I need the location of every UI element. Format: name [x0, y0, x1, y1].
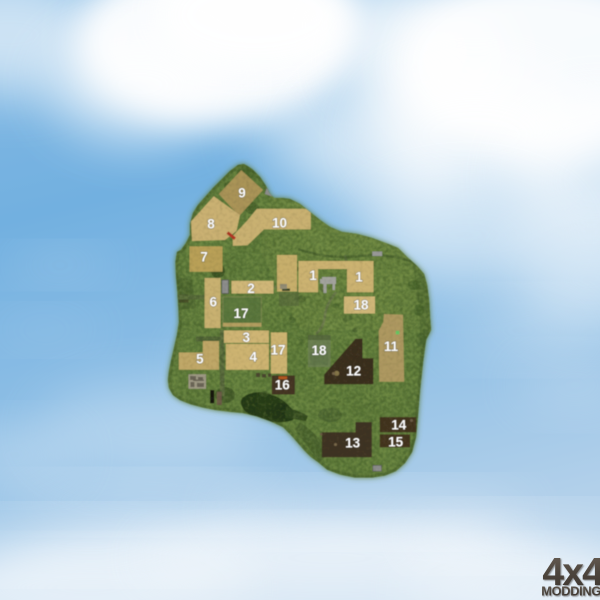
svg-text:11: 11: [384, 339, 399, 354]
svg-text:16: 16: [275, 378, 291, 393]
svg-text:1: 1: [309, 268, 317, 283]
svg-text:3: 3: [243, 330, 251, 345]
svg-text:MODDING: MODDING: [541, 583, 600, 598]
svg-text:10: 10: [272, 216, 287, 231]
svg-text:7: 7: [200, 250, 208, 265]
svg-text:15: 15: [388, 434, 404, 449]
svg-text:6: 6: [210, 294, 218, 309]
svg-text:1: 1: [355, 269, 363, 284]
svg-text:18: 18: [353, 297, 369, 312]
svg-text:4: 4: [249, 349, 257, 364]
svg-text:2: 2: [247, 281, 255, 296]
svg-text:17: 17: [270, 343, 285, 358]
svg-text:8: 8: [207, 217, 215, 232]
svg-text:14: 14: [391, 418, 407, 433]
svg-text:9: 9: [238, 186, 246, 201]
svg-text:18: 18: [311, 343, 327, 358]
svg-text:5: 5: [196, 352, 204, 367]
svg-text:13: 13: [345, 436, 361, 451]
svg-text:17: 17: [233, 306, 248, 321]
svg-text:12: 12: [346, 364, 361, 379]
